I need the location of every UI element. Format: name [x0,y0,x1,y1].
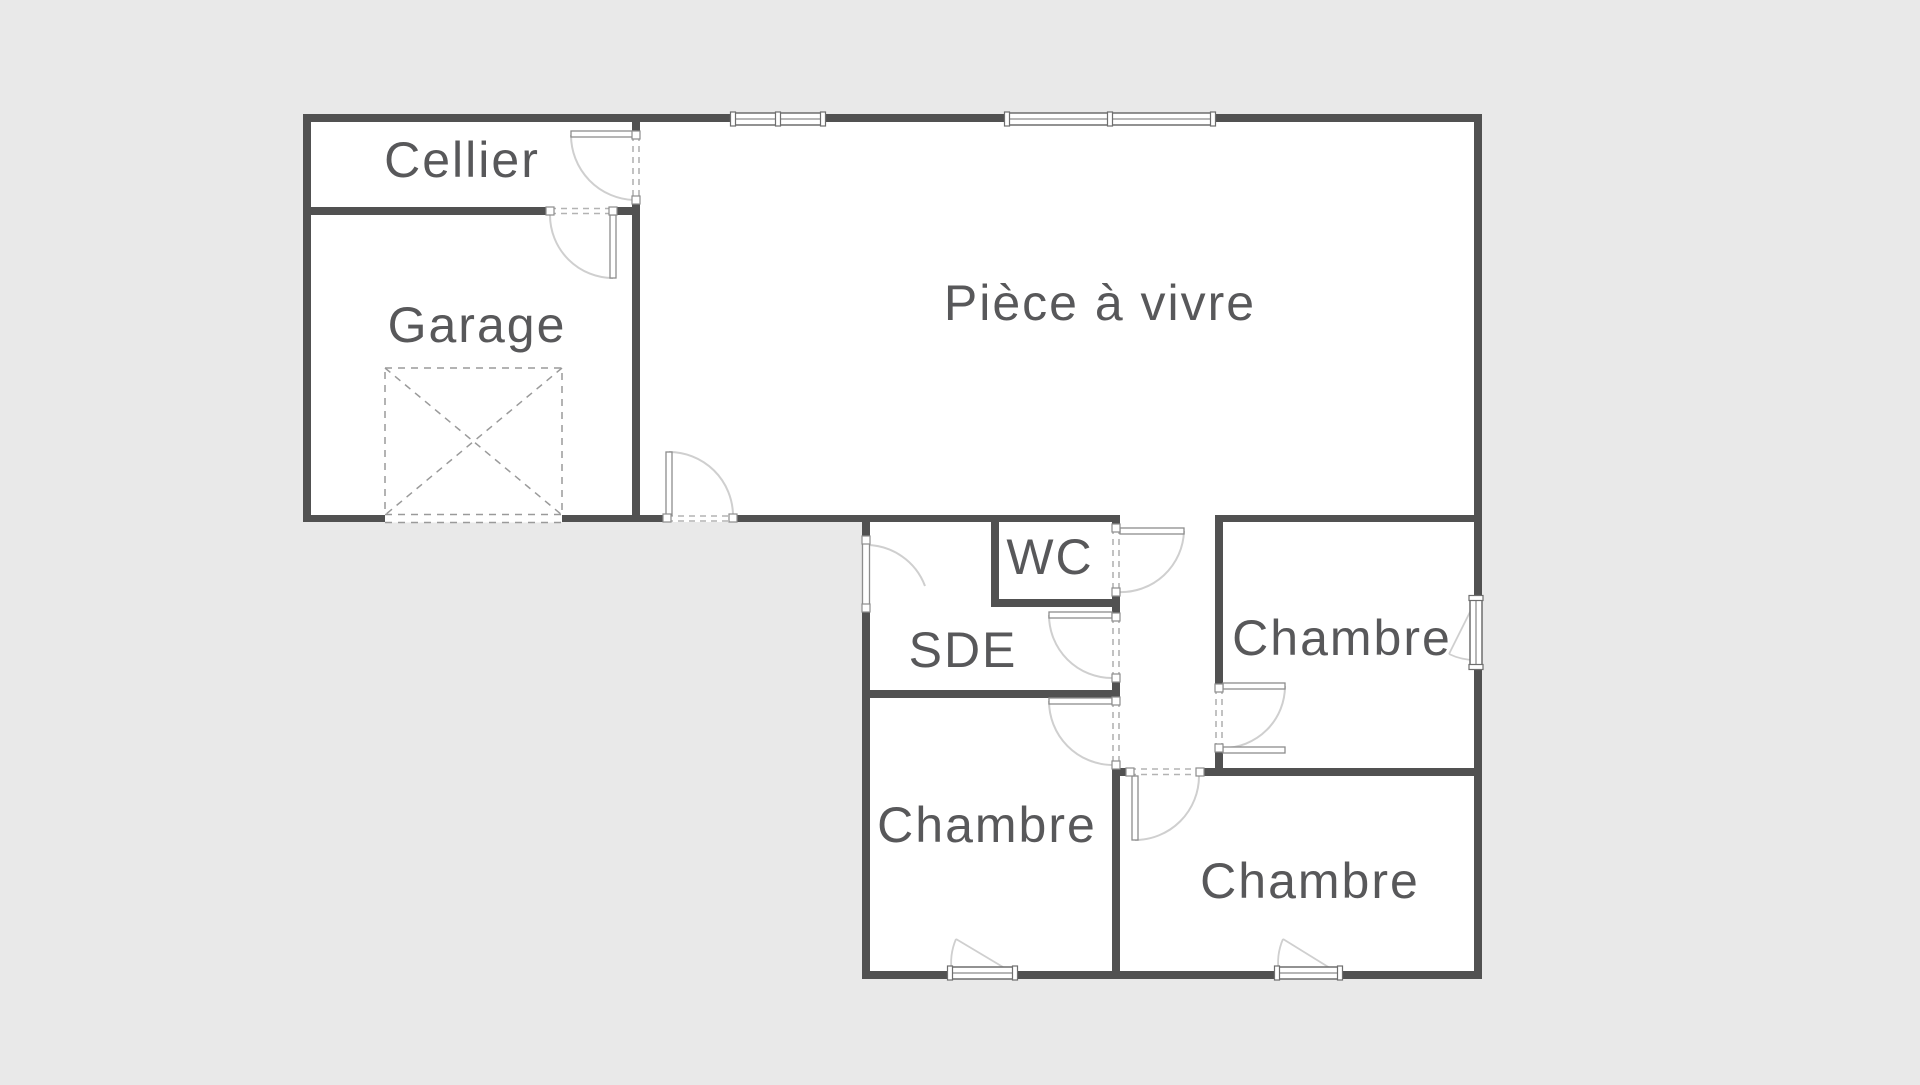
fenetre-sejour-1-mullion [776,112,781,126]
porte-cellier-jamb [632,131,640,139]
porte-chambre-droite-leaf [1223,683,1285,689]
porte-sde-gauche-jamb [862,536,870,544]
porte-chambre-droite-leaf [1223,747,1285,753]
wall [991,522,999,599]
room-label-chambre-droite: Chambre [1232,610,1452,666]
room-label-chambre-bas-droite: Chambre [1200,853,1420,909]
porte-chambre-bas-droite-leaf [1132,776,1138,840]
porte-cellier-jamb [632,196,640,204]
fenetre-sejour-2-mullion [1211,112,1216,126]
porte-sde-gauche-jamb [862,604,870,612]
wall [991,599,1120,607]
floor-plan-drawing: CellierGaragePièce à vivreWCSDEChambreCh… [0,0,1920,1080]
wall [862,690,1120,698]
porte-chambre-droite-jamb [1215,744,1223,752]
garage-door [385,515,562,523]
room-label-garage: Garage [388,297,567,353]
wall [862,608,870,971]
fenetre-sejour-2-mullion [1108,112,1113,126]
porte-garage-jamb [546,207,554,215]
porte-chambre-bas-droite-jamb [1126,768,1134,776]
porte-entree-jamb [663,514,671,522]
fenetre-chambre-bas-gauche-mullion [948,966,953,980]
porte-wc-jamb [1112,524,1120,532]
porte-sde-couloir-jamb [1112,613,1120,621]
porte-entree-jamb [729,514,737,522]
porte-chambre-bas-gauche-jamb [1112,761,1120,769]
porte-sde-couloir-jamb [1112,674,1120,682]
wall [1112,765,1120,971]
fenetre-chambre-bas-droite-mullion [1338,966,1343,980]
porte-chambre-bas-gauche-jamb [1112,697,1120,705]
porte-entree-leaf [666,452,672,515]
wall [303,207,550,215]
wall [632,200,640,515]
porte-garage-jamb [609,207,617,215]
wall [1215,522,1223,688]
fenetre-chambre-droite-mullion [1469,596,1483,601]
fenetre-sejour-1-mullion [821,112,826,126]
porte-wc-leaf [1120,528,1184,534]
wall [1474,114,1482,979]
floor-area-1 [862,515,1482,979]
room-label-wc: WC [1006,529,1093,585]
fenetre-chambre-bas-droite-mullion [1275,966,1280,980]
room-label-cellier: Cellier [384,132,540,188]
wall [733,515,1120,522]
porte-sde-gauche-leaf [863,540,870,608]
wall [1200,768,1482,776]
porte-garage-leaf [610,215,616,278]
room-label-piece-a-vivre: Pièce à vivre [944,275,1256,331]
floor-plan-canvas: CellierGaragePièce à vivreWCSDEChambreCh… [0,0,1920,1080]
porte-chambre-bas-gauche-leaf [1049,698,1112,704]
fenetre-chambre-droite-mullion [1469,665,1483,670]
wall [1215,515,1482,522]
fenetre-chambre-bas-gauche-mullion [1013,966,1018,980]
porte-chambre-bas-droite-jamb [1196,768,1204,776]
porte-wc-jamb [1112,588,1120,596]
fenetre-sejour-2-mullion [1005,112,1010,126]
room-label-chambre-bas-gauche: Chambre [877,797,1097,853]
porte-sde-couloir-leaf [1049,612,1112,618]
porte-chambre-droite-jamb [1215,684,1223,692]
porte-cellier-leaf [571,131,636,137]
room-label-sde: SDE [909,622,1018,678]
wall [303,114,311,522]
wall [303,114,1482,122]
fenetre-sejour-1-mullion [731,112,736,126]
